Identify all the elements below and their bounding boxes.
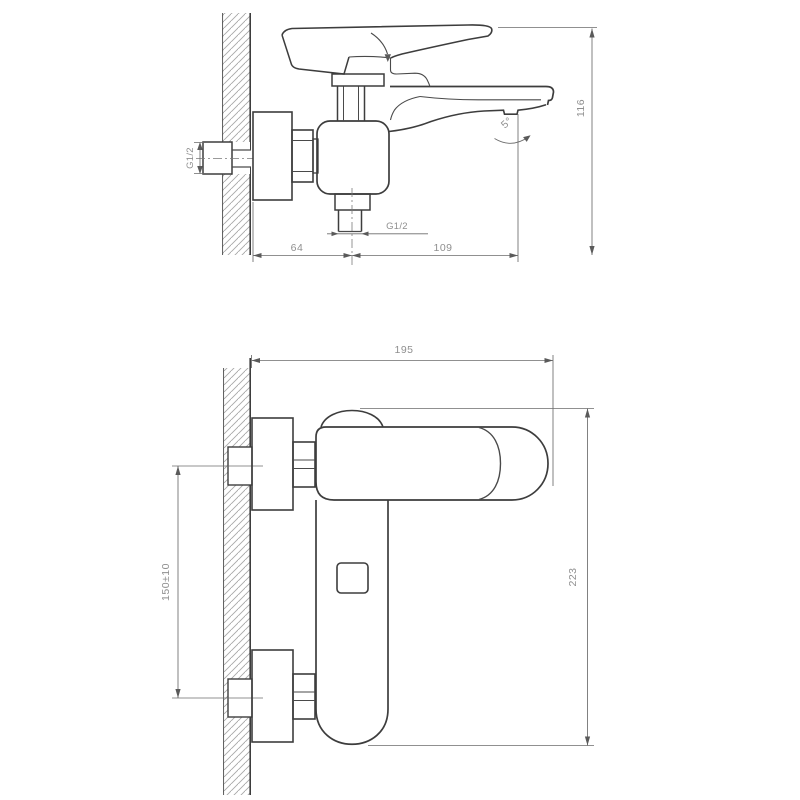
diverter-button bbox=[337, 563, 368, 593]
dimension-195: 195 bbox=[252, 344, 554, 486]
spout-top-edge bbox=[390, 87, 554, 106]
body-vertical-column bbox=[316, 500, 388, 744]
dim-150-label: 150±10 bbox=[160, 563, 172, 601]
wall-hatch-front bbox=[223, 368, 250, 795]
annotation-spout-angle: 5° bbox=[495, 115, 531, 143]
spout-handle-joint bbox=[391, 58, 431, 87]
dim-64-label: 64 bbox=[291, 242, 304, 254]
spout-side bbox=[389, 58, 554, 132]
dim-109-label: 109 bbox=[433, 242, 452, 254]
handle-bar-front bbox=[316, 427, 548, 500]
handle-inner-cap bbox=[479, 428, 501, 500]
dim-116-label: 116 bbox=[575, 99, 587, 117]
wall-hatch bbox=[222, 13, 250, 255]
front-view: 195 223 150±10 bbox=[160, 344, 594, 795]
spout-underside bbox=[389, 105, 546, 132]
spout-angle-label: 5° bbox=[499, 115, 515, 131]
wall-flange bbox=[253, 112, 292, 200]
spout-inner-line bbox=[420, 97, 541, 100]
lower-mounting-bracket bbox=[252, 650, 293, 742]
lever-handle-side bbox=[282, 25, 492, 74]
inlet-thread-label: G1/2 bbox=[185, 147, 196, 169]
bottom-outlet bbox=[335, 188, 370, 268]
dimension-outlet-thread: G1/2 bbox=[327, 221, 428, 236]
handle-pivot-bump bbox=[321, 411, 383, 428]
lever-underside bbox=[349, 56, 391, 58]
connection-nut bbox=[292, 130, 318, 182]
wall-section bbox=[222, 13, 250, 255]
spout-root-curve bbox=[391, 97, 421, 121]
cartridge-neck bbox=[332, 74, 384, 121]
cartridge-collar bbox=[332, 74, 384, 86]
dimension-150: 150±10 bbox=[160, 466, 181, 698]
upper-connection-nut bbox=[293, 442, 315, 487]
drawing-page: G1/2 bbox=[0, 0, 800, 800]
outlet-thread-label: G1/2 bbox=[386, 221, 408, 232]
lever-base-dome bbox=[282, 35, 349, 74]
dimension-116: 116 bbox=[498, 28, 597, 256]
wall-section-front bbox=[223, 358, 250, 795]
dim-195-label: 195 bbox=[394, 344, 413, 356]
mixer-body-front bbox=[316, 411, 548, 745]
outlet-nut bbox=[335, 194, 370, 210]
dim-223-label: 223 bbox=[567, 567, 579, 586]
faucet-technical-drawing: G1/2 bbox=[0, 0, 800, 800]
outlet-pipe bbox=[339, 210, 362, 232]
fitting-clearance bbox=[203, 142, 250, 174]
lower-connection-nut bbox=[293, 674, 315, 719]
lever-motion-arc bbox=[371, 33, 388, 54]
side-view: G1/2 bbox=[185, 13, 597, 268]
mixer-body-side bbox=[317, 121, 389, 194]
upper-mounting-bracket bbox=[252, 418, 293, 510]
dimension-223: 223 bbox=[360, 409, 594, 746]
